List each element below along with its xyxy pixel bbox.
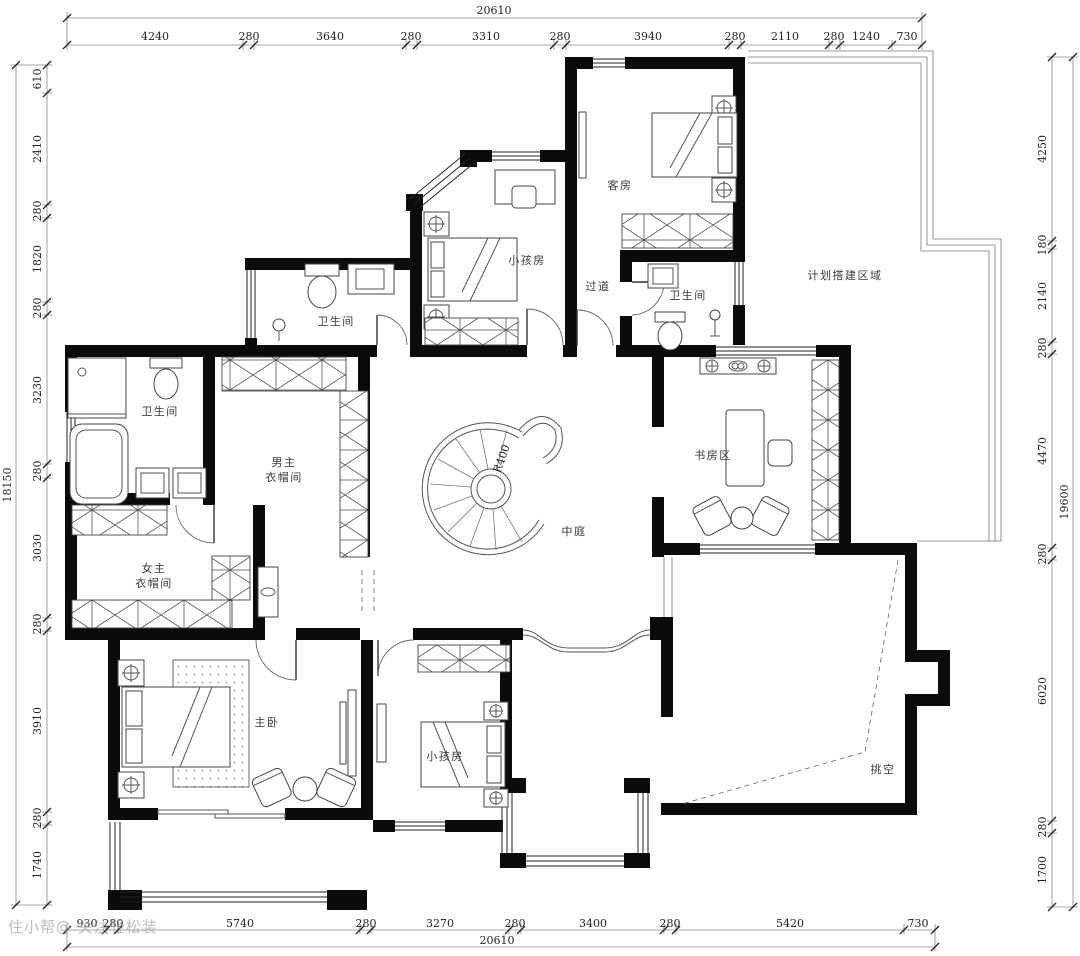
dim-bottom-5: 280 [505,917,526,930]
dim-bottom-6: 3400 [579,917,607,930]
dim-bottom-9: 730 [908,917,929,930]
label-stair-radius: R400 [491,443,513,475]
bath-top-right-furniture [648,264,720,350]
door-kids-bottom [378,640,414,676]
label-master: 主卧 [255,716,280,729]
window-guest-top [593,57,625,69]
dim-top-1: 280 [239,30,260,43]
label-master-bath: 卫生间 [141,404,179,418]
dim-right-7: 280 [1036,817,1049,838]
terrace-railing [110,822,327,902]
dim-top-3: 280 [401,30,422,43]
dim-bottom-4: 3270 [426,917,454,930]
dim-bottom-total: 20610 [480,934,515,947]
label-study: 书房区 [694,449,732,462]
dim-left-5: 3230 [31,376,44,404]
label-bath-top-right: 卫生间 [669,288,707,302]
dim-right-total: 19600 [1058,485,1071,520]
dim-top-8: 2110 [771,30,799,43]
dim-top-9: 280 [824,30,845,43]
door-kids-top [527,309,563,345]
dim-left-2: 280 [31,201,44,222]
dim-left-9: 3910 [31,707,44,735]
label-void: 挑空 [871,762,896,776]
window-bath-left [245,270,257,338]
label-bath-top-left: 卫生间 [317,314,355,328]
dim-top-6: 3940 [634,30,662,43]
dim-left-0: 610 [31,69,44,90]
window-void-top [700,543,815,555]
floorplan-page: 客房 小孩房 过道 卫生间 卫生间 计划搭建区域 卫生间 男主 衣帽间 女主 衣… [0,0,1080,956]
dim-right-0: 4250 [1036,135,1049,163]
dim-bottom-2: 5740 [226,917,254,930]
dim-bottom-7: 280 [660,917,681,930]
dim-top-2: 3640 [316,30,344,43]
sliding-door-master [158,810,285,818]
label-her-closet-2: 衣帽间 [135,576,173,590]
label-his-closet-2: 衣帽间 [265,470,303,484]
master-bedroom-furniture [118,660,357,808]
dim-right-8: 1700 [1036,856,1049,884]
dim-top-5: 280 [550,30,571,43]
dim-top-0: 4240 [141,30,169,43]
dimensions-top: 20610 4240 280 3640 280 3310 280 3940 28… [63,4,926,50]
dim-top-10: 1240 [852,30,880,43]
label-guest-room: 客房 [608,178,633,192]
dim-left-10: 280 [31,808,44,829]
window-bay-bottom [526,856,624,866]
label-kids-room-top: 小孩房 [508,254,546,267]
window-study-top [716,345,816,357]
guest-room-furniture [579,96,737,248]
kids-bottom-furniture [377,645,510,807]
dim-left-7: 3030 [31,534,44,562]
dim-left-1: 2410 [31,135,44,163]
door-corridor [577,310,613,346]
dim-top-7: 280 [725,30,746,43]
dim-bottom-3: 280 [356,917,377,930]
dim-top-total: 20610 [477,4,512,17]
label-kids-room-bottom: 小孩房 [426,750,464,763]
spiral-staircase [422,416,562,554]
bath-top-left-furniture [273,264,394,341]
dim-right-4: 4470 [1036,437,1049,465]
door-master-bath [176,505,214,543]
dim-left-8: 280 [31,614,44,635]
dim-left-total: 18150 [1,468,14,503]
dim-right-5: 280 [1036,544,1049,565]
watermark: 住小帮@ 关注轻松装 [8,918,158,936]
dim-right-6: 6020 [1036,677,1049,705]
door-bath-top-left [377,315,407,345]
window-guest-right [733,262,745,305]
dim-right-3: 280 [1036,338,1049,359]
dimensions-bottom: 20610 930 280 5740 280 3270 280 3400 280… [63,917,939,951]
dim-top-11: 730 [897,30,918,43]
dim-top-4: 3310 [472,30,500,43]
dim-left-4: 280 [31,298,44,319]
dim-left-3: 1820 [31,245,44,273]
label-his-closet-1: 男主 [272,456,297,469]
dim-right-1: 180 [1036,235,1049,256]
label-planned-area: 计划搭建区域 [808,268,883,282]
window-bay-right [638,793,648,853]
dim-left-11: 1740 [31,851,44,879]
dim-bottom-8: 5420 [776,917,804,930]
planned-area-outline [748,51,1001,541]
void-marking [682,560,898,804]
window-kids-top [492,150,540,162]
label-atrium: 中庭 [562,524,587,538]
window-kids-bottom [395,820,445,832]
curved-wall-niche [523,630,650,652]
door-master [256,640,296,680]
cased-opening [362,557,672,617]
master-bath-furniture [68,358,206,504]
dimensions-right: 19600 4250 180 2140 280 4470 280 6020 28… [1036,53,1078,911]
dim-left-6: 280 [31,461,44,482]
dimensions-left: 18150 610 2410 280 1820 280 3230 280 303… [1,61,52,909]
label-corridor: 过道 [586,279,611,293]
label-her-closet-1: 女主 [142,561,167,575]
floorplan-drawing: 客房 小孩房 过道 卫生间 卫生间 计划搭建区域 卫生间 男主 衣帽间 女主 衣… [0,0,1080,956]
dim-right-2: 2140 [1036,282,1049,310]
